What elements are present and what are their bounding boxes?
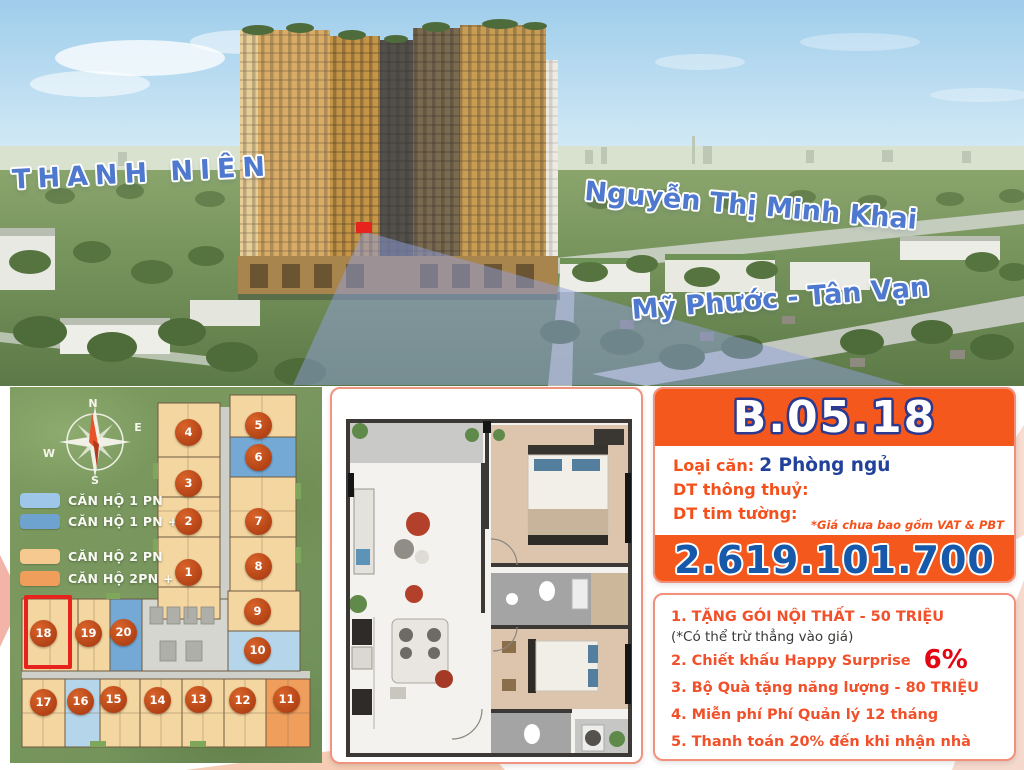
apartment-floorplan-panel [330,387,643,764]
unit-circle-15: 15 [100,686,127,713]
unit-circle-19: 19 [75,620,102,647]
selected-unit-outline [24,595,72,669]
unit-circle-3: 3 [175,470,202,497]
compass-w: W [43,447,55,460]
unit-circle-13: 13 [185,686,212,713]
poster-page: THANH NIÊN Nguyễn Thị Minh Khai Mỹ Phước… [0,0,1024,770]
promo-item-1: 1. TẶNG GÓI NỘI THẤT - 50 TRIỆU [671,607,1000,628]
unit-circle-9: 9 [244,598,271,625]
unit-code-banner: B.05.18 [655,389,1014,446]
unit-circle-16: 16 [67,688,94,715]
legend-label-2pn: CĂN HỘ 2 PN [68,549,163,564]
compass-s: S [91,474,99,487]
promo-item-2-text: 2. Chiết khấu Happy Surprise [671,653,911,669]
promo-item-2-highlight: 6% [924,645,968,675]
compass-rose: N E S W [38,395,148,487]
legend-swatch-2pn-plus [20,571,60,586]
compass-n: N [88,397,97,410]
price-value: 2.619.101.700 [674,538,995,582]
unit-info-card: B.05.18 Loại căn: 2 Phòng ngủ DT thông t… [653,387,1016,583]
promo-item-4: 4. Miễn phí Phí Quản lý 12 tháng [671,705,1000,726]
unit-location-marker [356,222,372,233]
unit-circle-7: 7 [245,508,272,535]
compass-e: E [134,421,142,434]
unit-circle-11: 11 [273,686,300,713]
promo-item-2: 2. Chiết khấu Happy Surprise 6% [671,650,1000,672]
legend-swatch-2pn [20,549,60,564]
legend-swatch-1pn-plus [20,514,60,529]
price-banner: 2.619.101.700 [655,535,1014,583]
unit-circle-17: 17 [30,689,57,716]
unit-code: B.05.18 [733,392,936,443]
gross-area-label: DT tim tường: [673,504,797,523]
unit-circle-10: 10 [244,637,271,664]
unit-circle-5: 5 [245,412,272,439]
unit-circle-20: 20 [110,619,137,646]
type-label: Loại căn: [673,456,754,475]
promo-item-3: 3. Bộ Quà tặng năng lượng - 80 TRIỆU [671,678,1000,699]
unit-circle-8: 8 [245,553,272,580]
unit-circle-1: 1 [175,559,202,586]
vat-note: *Giá chưa bao gồm VAT & PBT [811,518,1004,532]
promo-item-1-note: (*Có thể trừ thẳng vào giá) [671,628,1000,646]
unit-circle-2: 2 [175,508,202,535]
unit-circle-12: 12 [229,687,256,714]
unit-details: Loại căn: 2 Phòng ngủ DT thông thuỷ: DT … [655,446,1014,535]
legend-label-1pn-plus: CĂN HỘ 1 PN + [68,514,179,529]
net-area-label: DT thông thuỷ: [673,480,808,499]
promotions-card: 1. TẶNG GÓI NỘI THẤT - 50 TRIỆU (*Có thể… [653,593,1016,761]
unit-circle-6: 6 [245,444,272,471]
aerial-render: THANH NIÊN Nguyễn Thị Minh Khai Mỹ Phước… [0,0,1024,386]
apartment-floorplan-svg [332,389,641,762]
site-plan-panel: N E S W CĂN HỘ 1 PN CĂN HỘ 1 PN + CĂN HỘ… [10,387,322,763]
unit-circle-4: 4 [175,419,202,446]
promo-item-5: 5. Thanh toán 20% đến khi nhận nhà [671,732,1000,753]
legend-label-2pn-plus: CĂN HỘ 2PN + [68,571,174,586]
type-value: 2 Phòng ngủ [759,455,890,476]
legend-swatch-1pn [20,493,60,508]
aerial-render-art [0,0,1024,386]
unit-circle-14: 14 [144,687,171,714]
legend-label-1pn: CĂN HỘ 1 PN [68,493,163,508]
